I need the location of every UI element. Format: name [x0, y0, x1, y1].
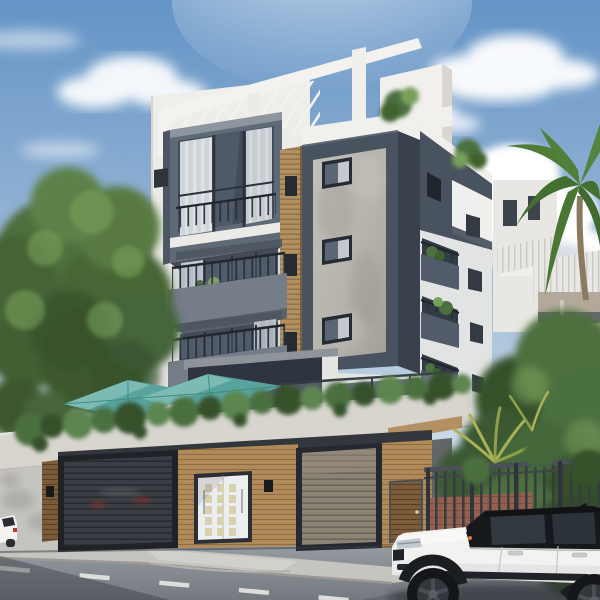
garage-door-left — [58, 450, 178, 552]
bg-window — [503, 200, 517, 226]
wing-window — [468, 268, 482, 292]
parked-car-partial — [0, 515, 17, 547]
wing-window — [466, 214, 480, 238]
stair-bulkhead-side — [442, 64, 452, 148]
wall-sconce — [264, 480, 273, 492]
tower-window-3 — [322, 313, 352, 345]
wall-sconce — [46, 486, 54, 497]
concrete-tower — [302, 131, 420, 374]
tower-window-2 — [322, 235, 352, 265]
vent-grille — [285, 176, 297, 196]
tower-return-face — [398, 131, 420, 374]
small-window — [154, 168, 168, 188]
suv-door-handle — [508, 551, 523, 555]
gate-handle — [415, 510, 419, 514]
mirror-signal-light — [468, 536, 472, 540]
suv-mirror — [466, 530, 484, 542]
suv-window — [490, 512, 546, 545]
suv-grille — [393, 549, 404, 561]
car-taillight — [13, 528, 17, 532]
suv-door-handle — [572, 553, 587, 557]
entry-door — [194, 471, 252, 544]
suv-window — [552, 510, 596, 544]
wood-strip — [42, 460, 58, 542]
bay-side — [163, 130, 170, 265]
architectural-render: Photorealistic daytime architectural ren… — [0, 0, 600, 600]
garage-door-right — [296, 443, 382, 551]
vent-grille — [285, 254, 297, 276]
tower-window-1 — [322, 157, 352, 189]
car-wheel — [6, 539, 15, 547]
